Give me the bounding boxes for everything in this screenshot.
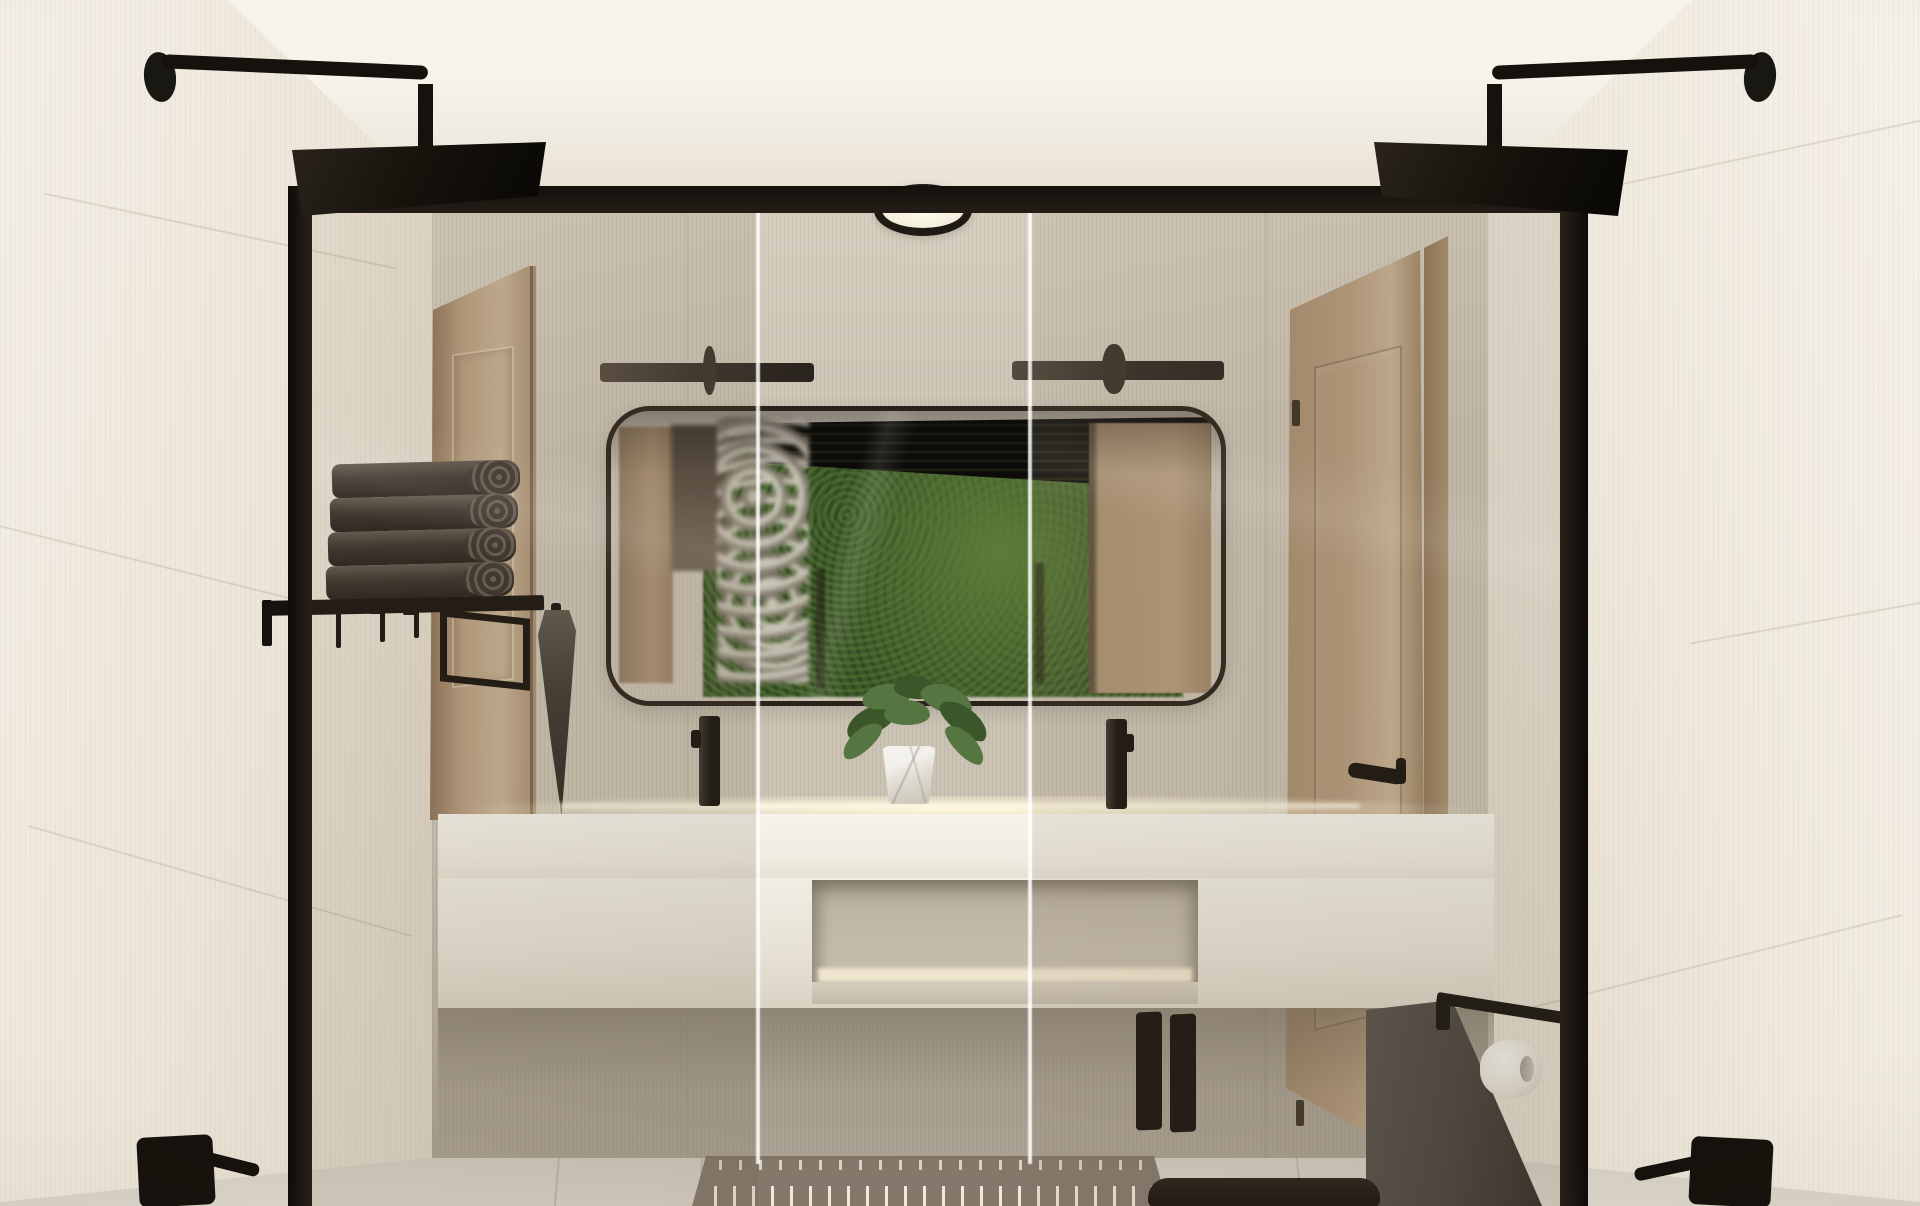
towel-shelf-bracket bbox=[262, 600, 272, 646]
tile-seam bbox=[0, 521, 295, 600]
tile-seam bbox=[1533, 914, 1902, 1008]
shower-glass-left bbox=[312, 212, 758, 1206]
plant-leaf bbox=[884, 700, 930, 725]
shower-stem-left bbox=[418, 84, 433, 146]
tile-seam bbox=[1612, 115, 1920, 188]
shower-glass-right bbox=[1032, 212, 1562, 1206]
shower-valve-right bbox=[1688, 1136, 1773, 1206]
plant-pot bbox=[880, 746, 938, 804]
shower-valve-left bbox=[136, 1134, 216, 1206]
tile-seam bbox=[1690, 597, 1920, 644]
glass-frame-right bbox=[1560, 186, 1588, 1206]
glass-edge-right bbox=[1028, 212, 1032, 1164]
glass-edge-left bbox=[756, 212, 760, 1164]
shower-stem-right bbox=[1487, 84, 1502, 146]
bathroom-render bbox=[0, 0, 1920, 1206]
glass-frame-left bbox=[288, 186, 312, 1206]
